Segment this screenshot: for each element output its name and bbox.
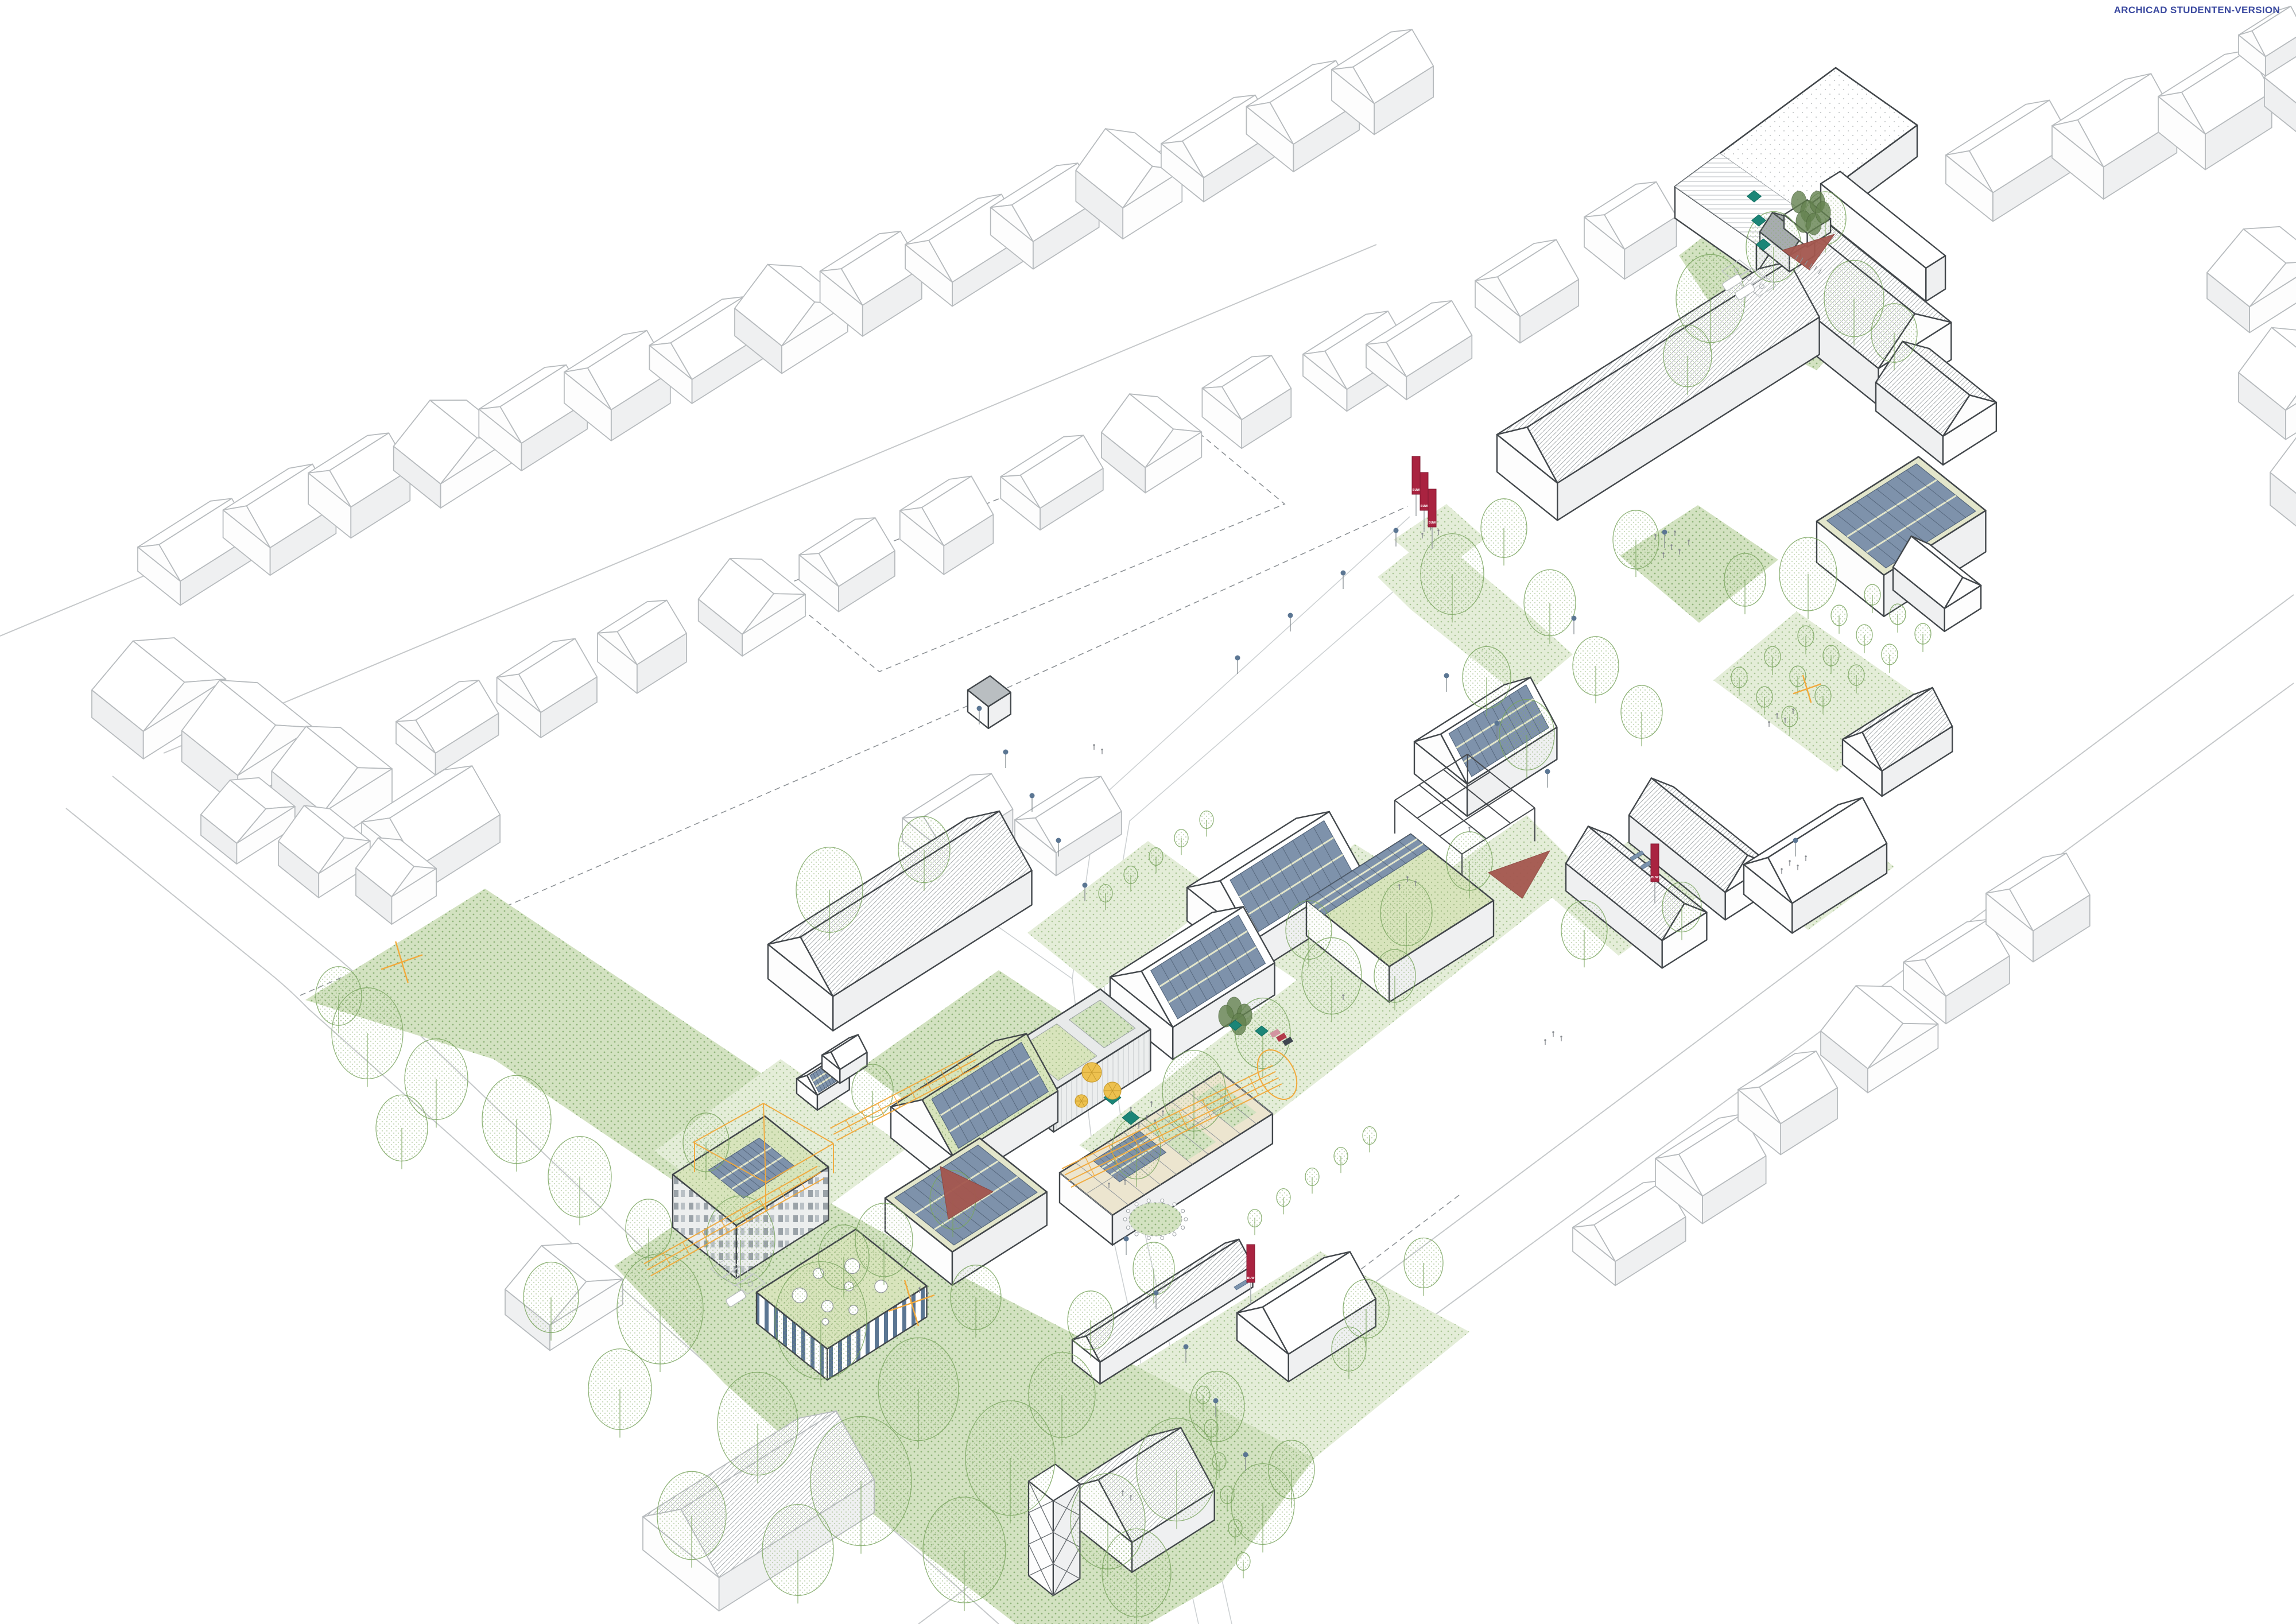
tree bbox=[1248, 1210, 1262, 1235]
tree bbox=[1779, 537, 1837, 619]
context-house bbox=[1475, 240, 1578, 343]
person-figure bbox=[1544, 1039, 1546, 1045]
context-house bbox=[1584, 182, 1677, 279]
yellow-umbrella bbox=[1104, 1082, 1121, 1099]
yellow-umbrella bbox=[1075, 1095, 1088, 1107]
person-figure bbox=[1552, 1031, 1554, 1037]
tree bbox=[1404, 1238, 1443, 1296]
tree bbox=[1481, 499, 1527, 565]
archicad-watermark: ARCHICAD STUDENTEN-VERSION bbox=[2114, 5, 2280, 16]
context-house bbox=[1015, 777, 1122, 876]
context-house bbox=[900, 476, 994, 575]
tree bbox=[1236, 1553, 1250, 1579]
buw-banner: BUW bbox=[1412, 456, 1420, 516]
street-lamp bbox=[1444, 673, 1449, 692]
context-house bbox=[1903, 920, 2010, 1024]
tree bbox=[1174, 830, 1188, 855]
tree bbox=[1573, 637, 1619, 703]
tree bbox=[1621, 685, 1662, 746]
tree bbox=[762, 1505, 833, 1604]
drawing-canvas: BUWBUWBUWBUWBUW ARCHICAD STUDENTEN-VERSI… bbox=[0, 0, 2296, 1624]
tree bbox=[588, 1349, 651, 1438]
buw-banner-label: BUW bbox=[1421, 505, 1429, 508]
yellow-umbrella bbox=[1082, 1063, 1102, 1082]
tree bbox=[1305, 1168, 1319, 1194]
site-building bbox=[1744, 797, 1887, 933]
person-figure bbox=[1768, 721, 1770, 727]
street-lamp bbox=[1003, 750, 1009, 769]
context-house bbox=[497, 639, 597, 738]
context-house bbox=[598, 600, 687, 693]
tree bbox=[548, 1137, 611, 1226]
tree bbox=[1882, 644, 1898, 673]
context-house bbox=[699, 559, 805, 656]
context-house bbox=[2052, 73, 2177, 199]
person-figure bbox=[1101, 749, 1103, 754]
context-house bbox=[799, 518, 895, 612]
tree bbox=[1277, 1189, 1290, 1215]
tree bbox=[1856, 625, 1872, 653]
context-house bbox=[2239, 328, 2296, 440]
context-house bbox=[2270, 433, 2296, 539]
street-lamp bbox=[1572, 616, 1577, 635]
person-figure bbox=[1093, 744, 1095, 750]
tree bbox=[1561, 901, 1607, 967]
street-lamp bbox=[1288, 613, 1293, 632]
buw-banner-label: BUW bbox=[1247, 1277, 1255, 1280]
street-lamp bbox=[1124, 1237, 1129, 1255]
buw-banner-label: BUW bbox=[1429, 521, 1437, 525]
tree bbox=[376, 1095, 428, 1169]
conifer-tree bbox=[1816, 201, 1830, 223]
street-lamp bbox=[1545, 769, 1550, 788]
tree bbox=[1831, 605, 1847, 634]
context-house bbox=[2207, 227, 2296, 333]
street-lamp bbox=[1341, 571, 1346, 590]
context-house bbox=[1000, 435, 1103, 530]
context-house bbox=[1102, 394, 1201, 493]
tree bbox=[1915, 623, 1931, 652]
person-figure bbox=[1560, 1036, 1562, 1041]
tree bbox=[1363, 1127, 1376, 1153]
tree bbox=[1890, 604, 1906, 633]
site-plan-drawing: BUWBUWBUWBUWBUW bbox=[0, 0, 2296, 1624]
tree bbox=[1724, 553, 1766, 614]
site-building bbox=[968, 676, 1011, 728]
context-house bbox=[396, 680, 499, 775]
buw-banner-label: BUW bbox=[1651, 876, 1659, 879]
tree bbox=[1200, 811, 1213, 837]
context-house bbox=[1946, 100, 2073, 222]
buw-banner-label: BUW bbox=[1413, 489, 1421, 492]
tree bbox=[482, 1075, 551, 1172]
context-house bbox=[1202, 355, 1291, 448]
tree bbox=[1334, 1148, 1348, 1173]
